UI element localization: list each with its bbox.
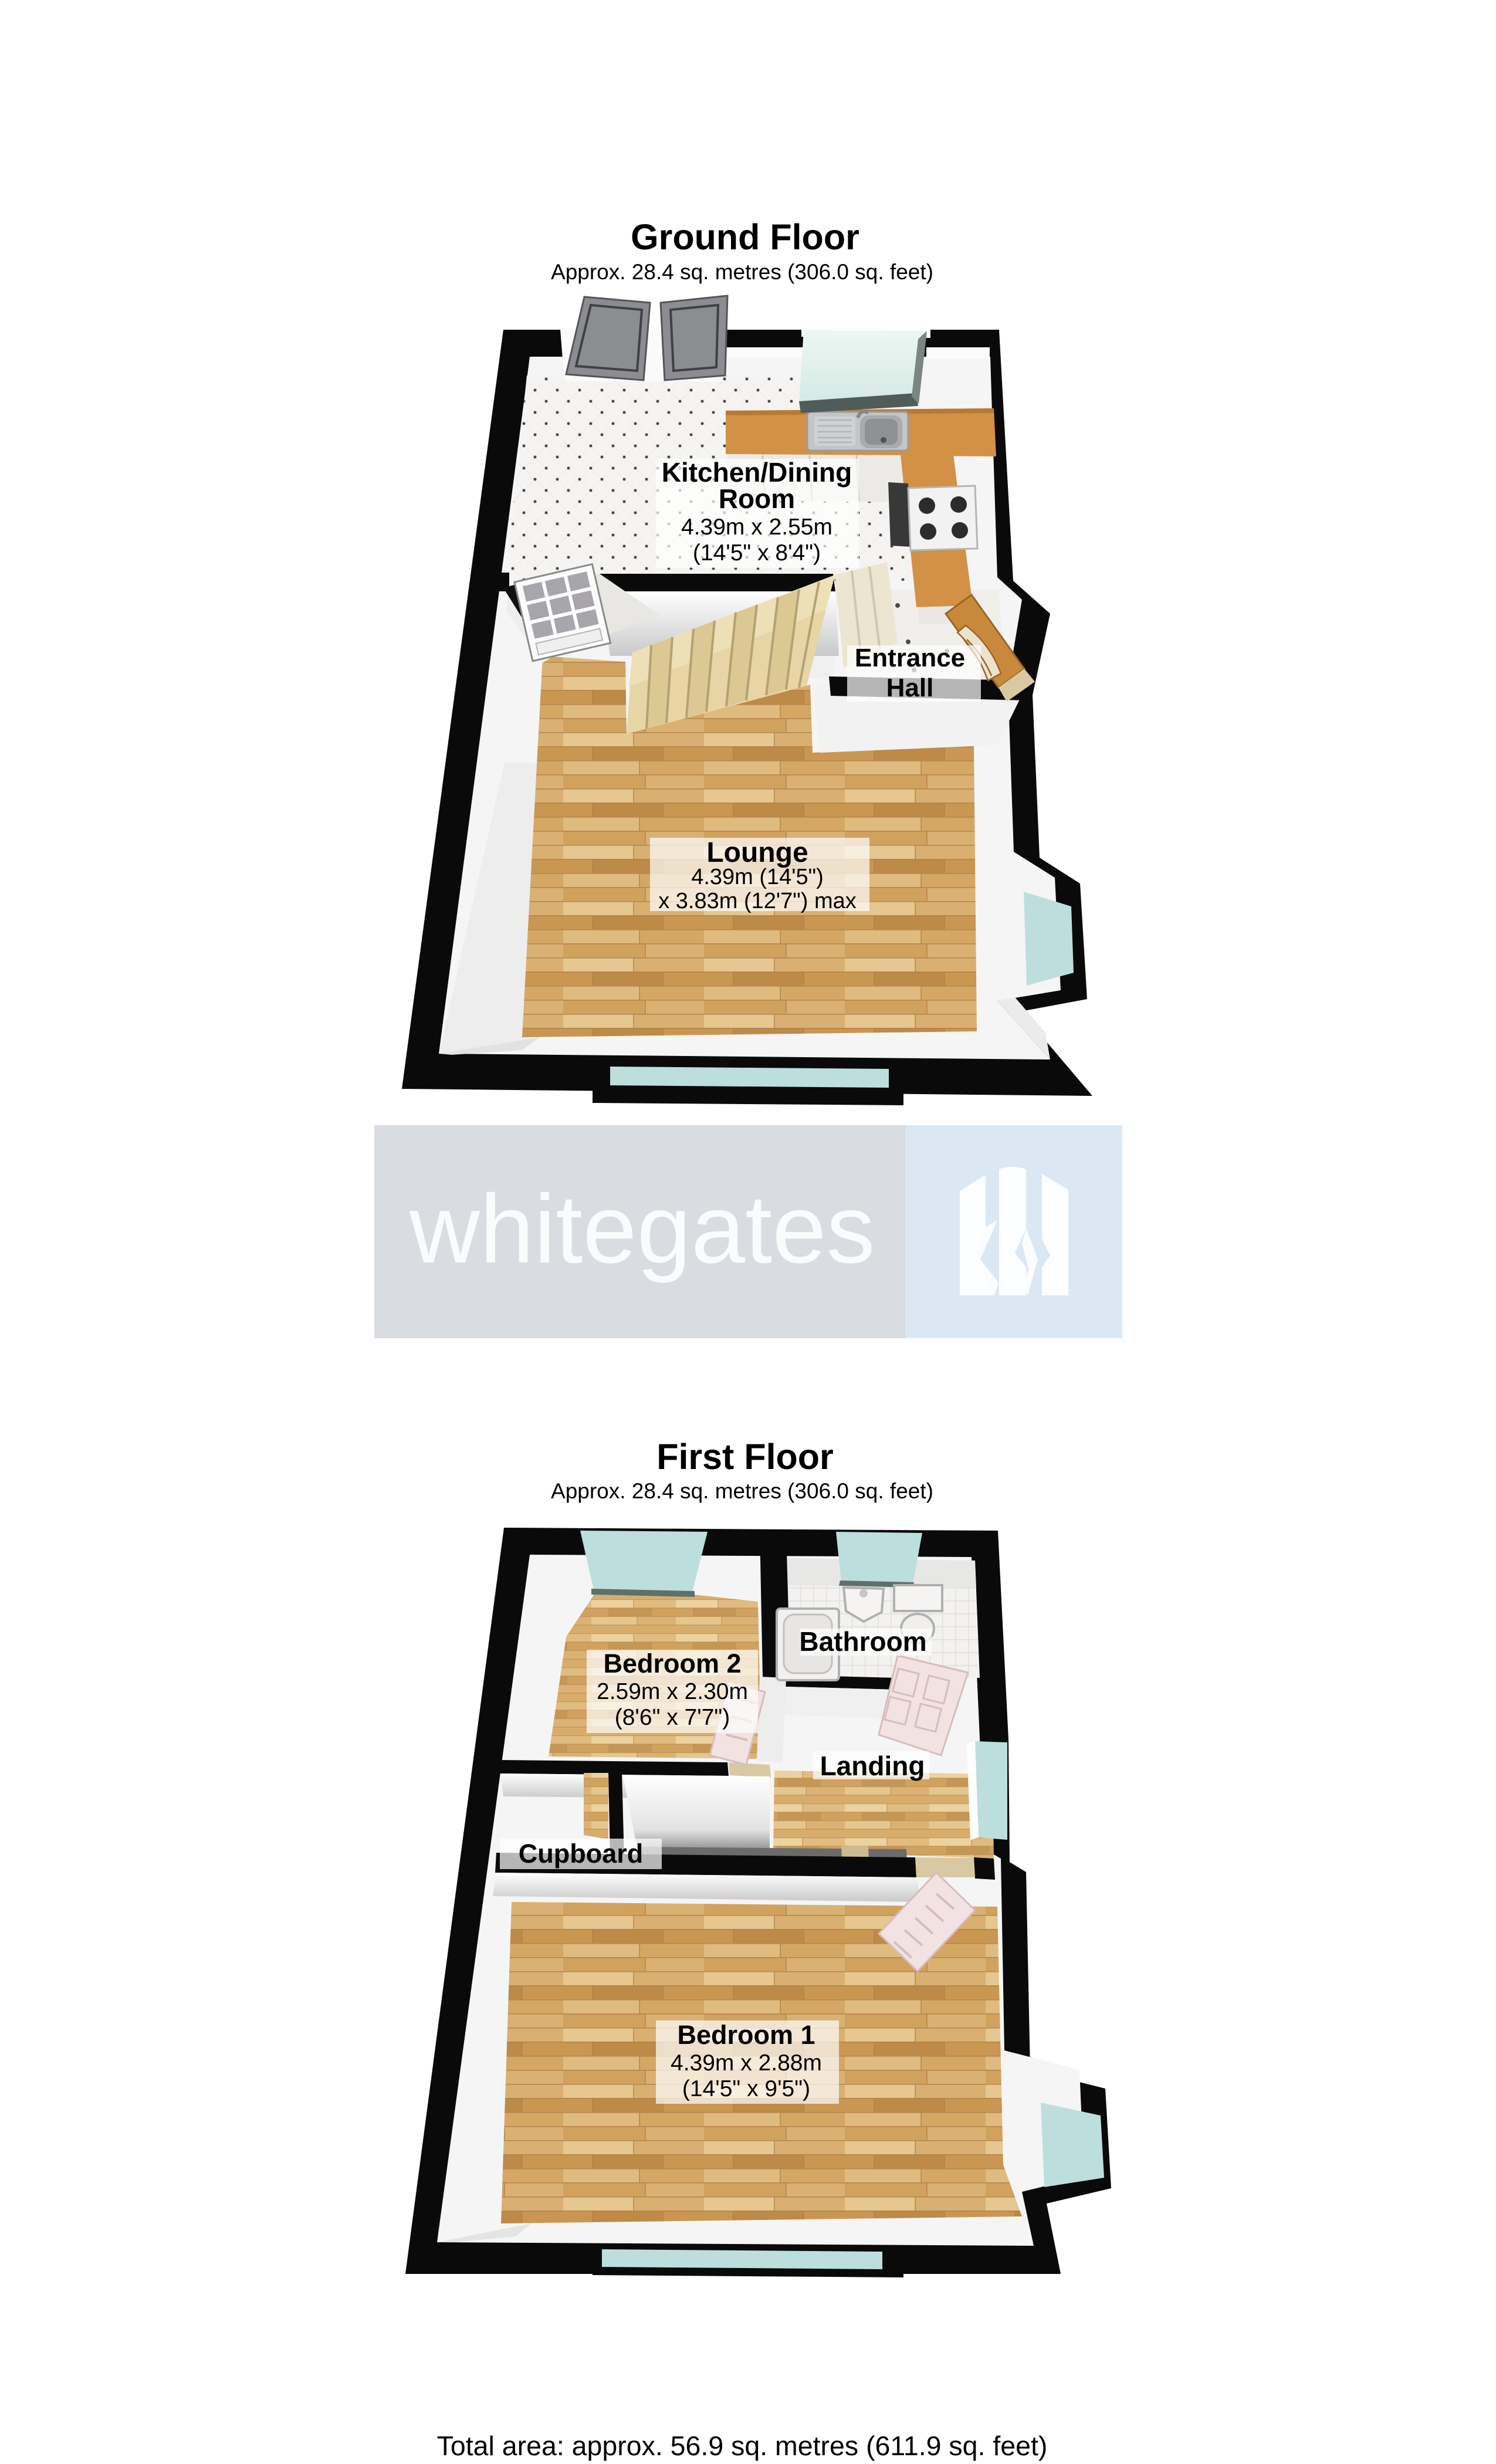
svg-text:(14'5" x 9'5"): (14'5" x 9'5") bbox=[682, 2076, 810, 2101]
svg-text:Bedroom 1: Bedroom 1 bbox=[677, 2020, 815, 2050]
svg-text:Bedroom 2: Bedroom 2 bbox=[603, 1649, 741, 1678]
svg-text:x 3.83m (12'7") max: x 3.83m (12'7") max bbox=[658, 889, 857, 913]
svg-text:4.39m x 2.55m: 4.39m x 2.55m bbox=[681, 515, 832, 540]
svg-text:Room: Room bbox=[719, 483, 795, 514]
svg-text:Approx. 28.4 sq. metres (306.0: Approx. 28.4 sq. metres (306.0 sq. feet) bbox=[551, 1479, 933, 1503]
svg-text:whitegates: whitegates bbox=[409, 1175, 875, 1284]
svg-text:Approx. 28.4 sq. metres (306.0: Approx. 28.4 sq. metres (306.0 sq. feet) bbox=[551, 260, 933, 284]
svg-text:Bathroom: Bathroom bbox=[799, 1626, 926, 1657]
svg-text:Landing: Landing bbox=[820, 1751, 925, 1781]
svg-text:Lounge: Lounge bbox=[706, 837, 808, 868]
svg-text:Ground Floor: Ground Floor bbox=[631, 217, 859, 257]
svg-text:Hall: Hall bbox=[886, 673, 934, 702]
svg-text:Total area: approx. 56.9 sq. m: Total area: approx. 56.9 sq. metres (611… bbox=[437, 2431, 1048, 2461]
svg-text:(8'6" x 7'7"): (8'6" x 7'7") bbox=[615, 1705, 730, 1730]
svg-text:(14'5" x 8'4"): (14'5" x 8'4") bbox=[693, 540, 821, 566]
svg-text:4.39m (14'5"): 4.39m (14'5") bbox=[691, 865, 824, 889]
svg-text:4.39m x 2.88m: 4.39m x 2.88m bbox=[671, 2050, 822, 2076]
svg-text:Cupboard: Cupboard bbox=[519, 1839, 643, 1869]
svg-text:Entrance: Entrance bbox=[855, 644, 965, 672]
svg-text:2.59m x 2.30m: 2.59m x 2.30m bbox=[597, 1679, 748, 1704]
svg-text:First Floor: First Floor bbox=[656, 1437, 834, 1477]
